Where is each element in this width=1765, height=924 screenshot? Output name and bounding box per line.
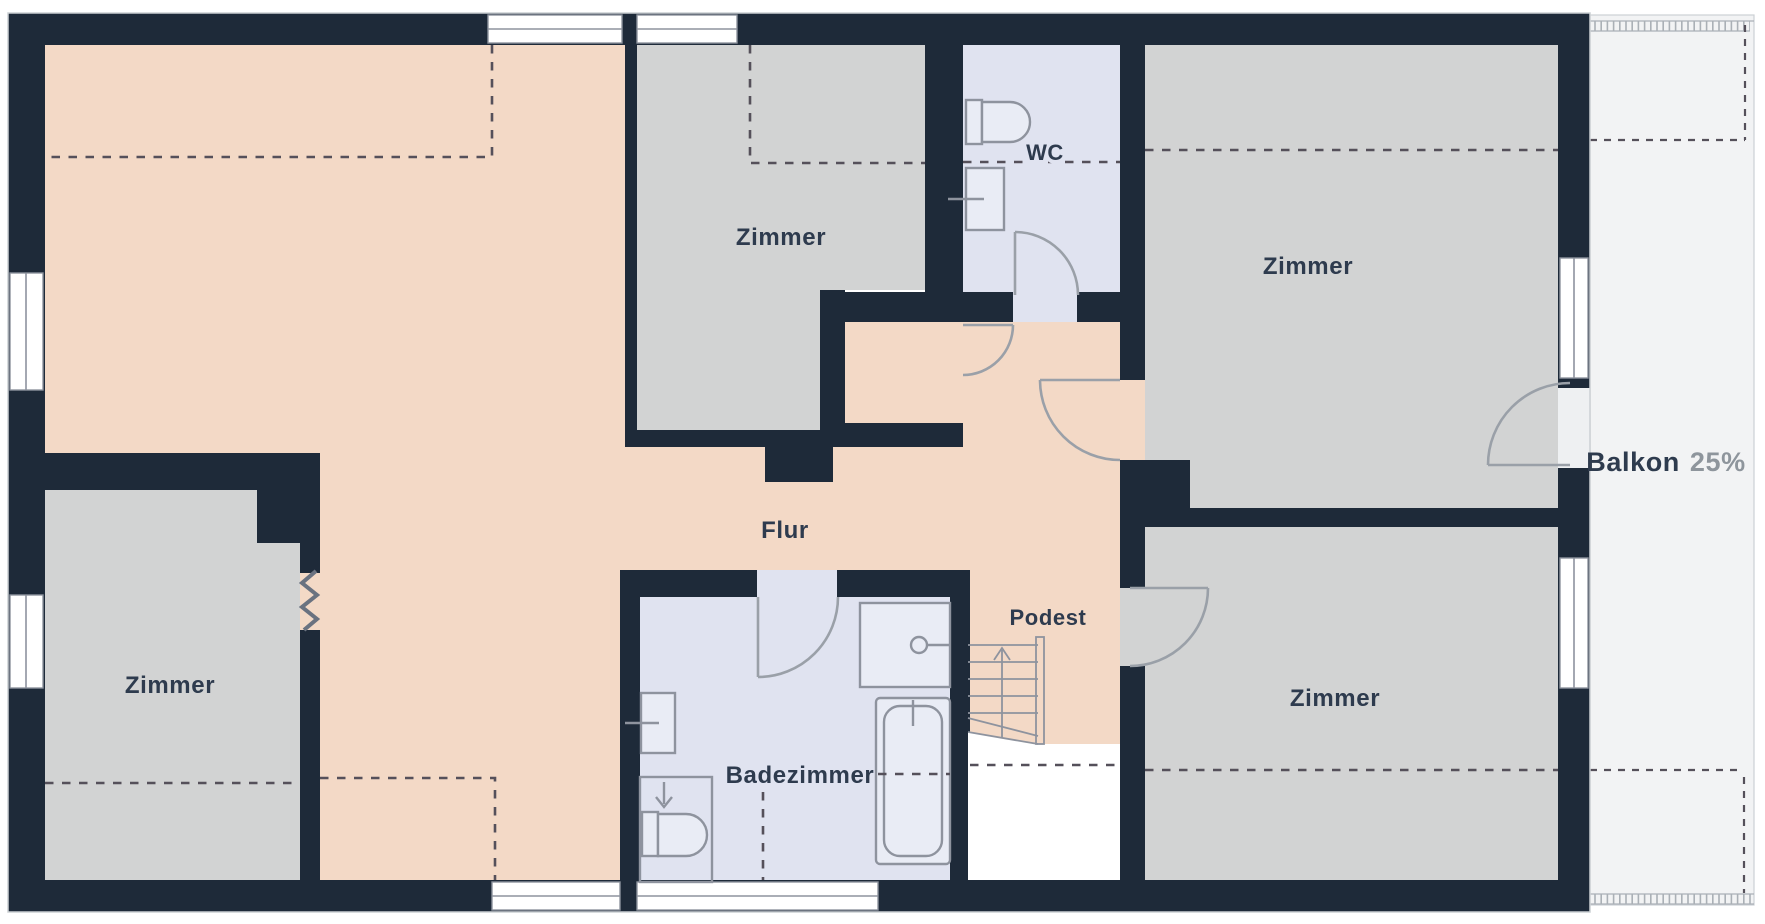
zimmer-tr-door-opening (1120, 380, 1145, 460)
wall-corridor-bottom (845, 423, 963, 447)
bad-door-opening (757, 570, 837, 597)
toilet-cistern-icon (966, 100, 982, 144)
stair-void (968, 732, 1120, 880)
zimmer-br-door-opening (1120, 588, 1145, 666)
wall-zimmer-br-top (1145, 508, 1558, 527)
wall-zimmer-bl-notch (257, 490, 320, 543)
floor-plan-canvas: Zimmer Zimmer Zimmer Zimmer Flur Podest … (0, 0, 1765, 924)
label-badezimmer: Badezimmer (726, 762, 875, 789)
wall-wc-left (925, 15, 963, 292)
label-balkon: Balkon25% (1586, 447, 1745, 477)
wc-door-opening (1013, 292, 1077, 322)
wall-zimmer-bl-right-lower (300, 630, 320, 883)
label-flur: Flur (761, 517, 809, 544)
wall-zimmer-tm-left (625, 45, 637, 430)
bath-toilet-icon (658, 814, 707, 856)
balcony-door-opening (1558, 388, 1590, 468)
label-zimmer-bottom-right: Zimmer (1290, 685, 1380, 712)
wall-corridor-top-left (845, 292, 1013, 322)
wall-bad-right (950, 570, 970, 883)
label-zimmer-top-right: Zimmer (1263, 253, 1353, 280)
label-podest: Podest (1010, 605, 1087, 630)
label-balkon-share: 25% (1690, 447, 1746, 477)
wall-zimmer-bl-top (8, 453, 320, 490)
label-zimmer-bottom-left: Zimmer (125, 672, 215, 699)
label-zimmer-top-middle: Zimmer (736, 224, 826, 251)
label-wc: WC (1026, 140, 1064, 165)
wall-spine-middle (1120, 460, 1145, 588)
wall-spine-pier (1145, 460, 1190, 508)
wall-bad-top-left (620, 570, 757, 597)
wall-stub-flur (765, 443, 833, 482)
wall-spine-lower (1120, 666, 1145, 883)
bath-toilet-cistern-icon (642, 812, 658, 856)
wall-zimmer-tm-notch (820, 290, 845, 447)
wall-bad-left (620, 570, 640, 883)
wall-exterior-top (8, 13, 1590, 45)
wall-spine-upper (1120, 15, 1145, 380)
floor-plan: Zimmer Zimmer Zimmer Zimmer Flur Podest … (0, 0, 1765, 924)
label-balkon-name: Balkon (1586, 447, 1680, 477)
toilet-icon (982, 102, 1030, 142)
